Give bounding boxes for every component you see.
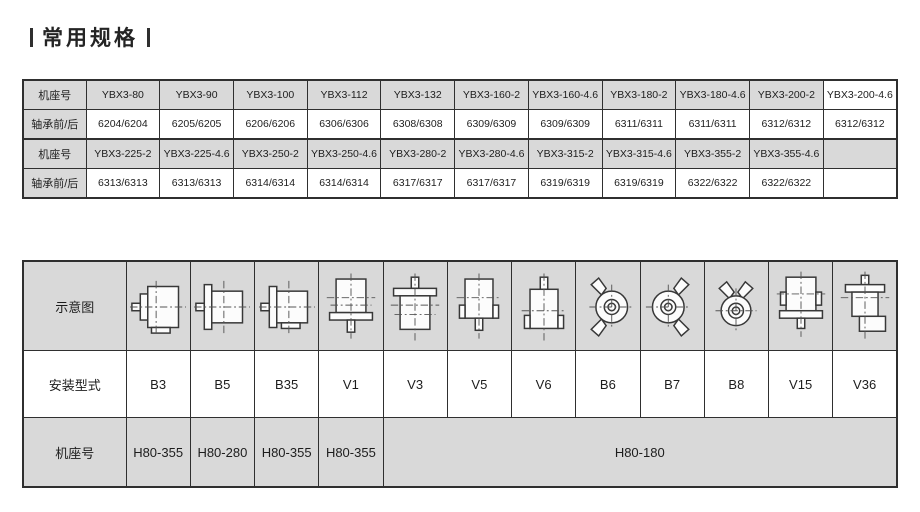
mounting-type-cell: B6	[576, 351, 640, 418]
mounting-type-cell: V6	[512, 351, 576, 418]
schematic-cell	[833, 261, 897, 351]
bearing-pair-cell: 6319/6319	[528, 169, 602, 199]
frame-model-cell: YBX3-132	[381, 80, 455, 110]
frame-model-cell: YBX3-200-4.6	[823, 80, 897, 110]
title-marker-left	[30, 28, 33, 47]
bearing-pair-cell: 6322/6322	[749, 169, 823, 199]
schematic-cell	[769, 261, 833, 351]
frame-model-cell: YBX3-112	[307, 80, 381, 110]
bearing-pair-cell: 6204/6204	[86, 110, 160, 140]
frame-model-cell: YBX3-160-4.6	[528, 80, 602, 110]
frame-model-cell: YBX3-90	[160, 80, 234, 110]
mounting-type-cell: V5	[447, 351, 511, 418]
frame-header-row-2: 机座号 YBX3-225-2 YBX3-225-4.6 YBX3-250-2 Y…	[23, 139, 897, 169]
diagram-v15-icon	[771, 266, 831, 348]
diagram-b3-icon	[128, 266, 188, 348]
frame-range-cell: H80-355	[255, 418, 319, 488]
diagram-v5-icon	[449, 266, 509, 348]
row-label-bearing: 轴承前/后	[23, 169, 86, 199]
diagram-v36-icon	[835, 266, 895, 348]
frame-model-cell: YBX3-280-2	[381, 139, 455, 169]
bearing-pair-cell: 6322/6322	[676, 169, 750, 199]
frame-model-cell: YBX3-315-4.6	[602, 139, 676, 169]
frame-model-cell: YBX3-225-2	[86, 139, 160, 169]
schematic-cell	[576, 261, 640, 351]
frame-model-cell: YBX3-355-2	[676, 139, 750, 169]
schematic-cell	[512, 261, 576, 351]
bearing-pair-cell: 6312/6312	[749, 110, 823, 140]
diagram-b8-icon	[706, 266, 766, 348]
frame-model-cell: YBX3-180-4.6	[676, 80, 750, 110]
mounting-type-cell: V36	[833, 351, 897, 418]
page-title-text: 常用规格	[42, 22, 138, 52]
bearing-pair-cell: 6317/6317	[381, 169, 455, 199]
frame-range-cell: H80-355	[319, 418, 383, 488]
frame-model-cell: YBX3-250-2	[233, 139, 307, 169]
mounting-type-cell: B8	[704, 351, 768, 418]
mounting-type-row: 安装型式 B3 B5 B35 V1 V3 V5 V6 B6 B7 B8 V15 …	[23, 351, 897, 418]
bearing-pair-cell: 6308/6308	[381, 110, 455, 140]
bearing-pair-cell: 6206/6206	[233, 110, 307, 140]
bearing-pair-cell: 6309/6309	[455, 110, 529, 140]
diagram-v1-icon	[321, 266, 381, 348]
bearing-pair-cell: 6317/6317	[455, 169, 529, 199]
mounting-type-cell: B5	[190, 351, 254, 418]
frame-model-cell: YBX3-80	[86, 80, 160, 110]
schematic-row: 示意图	[23, 261, 897, 351]
frame-model-cell: YBX3-160-2	[455, 80, 529, 110]
bearing-pair-cell: 6311/6311	[602, 110, 676, 140]
diagram-v6-icon	[514, 266, 574, 348]
frame-model-cell: YBX3-250-4.6	[307, 139, 381, 169]
frame-range-cell: H80-280	[190, 418, 254, 488]
diagram-b35-icon	[257, 266, 317, 348]
empty-cell	[823, 169, 897, 199]
frame-model-cell: YBX3-225-4.6	[160, 139, 234, 169]
schematic-cell	[255, 261, 319, 351]
mounting-type-cell: V1	[319, 351, 383, 418]
bearing-spec-table: 机座号 YBX3-80 YBX3-90 YBX3-100 YBX3-112 YB…	[22, 79, 898, 199]
row-label-bearing: 轴承前/后	[23, 110, 86, 140]
bearing-pair-cell: 6306/6306	[307, 110, 381, 140]
empty-cell	[823, 139, 897, 169]
title-marker-right	[147, 28, 150, 47]
bearing-pair-cell: 6312/6312	[823, 110, 897, 140]
bearing-pair-cell: 6311/6311	[676, 110, 750, 140]
mounting-type-cell: B7	[640, 351, 704, 418]
frame-range-row: 机座号 H80-355 H80-280 H80-355 H80-355 H80-…	[23, 418, 897, 488]
bearing-pair-cell: 6313/6313	[86, 169, 160, 199]
mounting-type-table: 示意图	[22, 260, 898, 488]
row-label-frame: 机座号	[23, 418, 126, 488]
frame-range-cell: H80-355	[126, 418, 190, 488]
frame-range-merged-cell: H80-180	[383, 418, 897, 488]
bearing-pair-cell: 6309/6309	[528, 110, 602, 140]
bearing-value-row-1: 轴承前/后 6204/6204 6205/6205 6206/6206 6306…	[23, 110, 897, 140]
frame-model-cell: YBX3-355-4.6	[749, 139, 823, 169]
mounting-type-cell: B35	[255, 351, 319, 418]
page-title: 常用规格	[30, 22, 150, 52]
row-label-mounting-type: 安装型式	[23, 351, 126, 418]
row-label-frame: 机座号	[23, 139, 86, 169]
schematic-cell	[383, 261, 447, 351]
frame-model-cell: YBX3-200-2	[749, 80, 823, 110]
frame-model-cell: YBX3-180-2	[602, 80, 676, 110]
bearing-pair-cell: 6314/6314	[307, 169, 381, 199]
schematic-cell	[319, 261, 383, 351]
schematic-cell	[447, 261, 511, 351]
bearing-pair-cell: 6205/6205	[160, 110, 234, 140]
frame-header-row-1: 机座号 YBX3-80 YBX3-90 YBX3-100 YBX3-112 YB…	[23, 80, 897, 110]
frame-model-cell: YBX3-315-2	[528, 139, 602, 169]
bearing-value-row-2: 轴承前/后 6313/6313 6313/6313 6314/6314 6314…	[23, 169, 897, 199]
diagram-b7-icon	[642, 266, 702, 348]
row-label-schematic: 示意图	[23, 261, 126, 351]
mounting-type-cell: B3	[126, 351, 190, 418]
bearing-pair-cell: 6313/6313	[160, 169, 234, 199]
diagram-b6-icon	[578, 266, 638, 348]
bearing-pair-cell: 6319/6319	[602, 169, 676, 199]
frame-model-cell: YBX3-100	[233, 80, 307, 110]
bearing-pair-cell: 6314/6314	[233, 169, 307, 199]
schematic-cell	[190, 261, 254, 351]
diagram-v3-icon	[385, 266, 445, 348]
schematic-cell	[640, 261, 704, 351]
schematic-cell	[126, 261, 190, 351]
mounting-type-cell: V15	[769, 351, 833, 418]
frame-model-cell: YBX3-280-4.6	[455, 139, 529, 169]
diagram-b5-icon	[192, 266, 252, 348]
schematic-cell	[704, 261, 768, 351]
mounting-type-cell: V3	[383, 351, 447, 418]
row-label-frame: 机座号	[23, 80, 86, 110]
